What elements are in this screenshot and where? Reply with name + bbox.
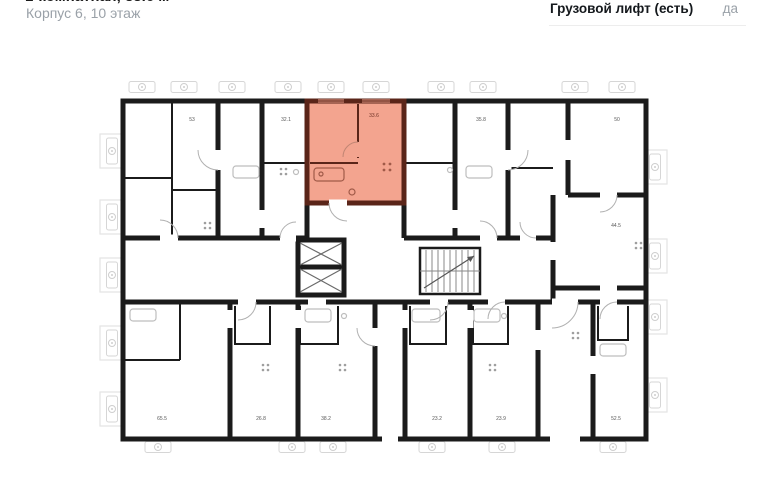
- window-icon: [129, 82, 155, 93]
- window-icon: [609, 82, 635, 93]
- window-icon: [219, 82, 245, 93]
- window-icon: [470, 82, 496, 93]
- unit-area-label: 38.2: [321, 416, 331, 422]
- window-icon: [650, 304, 661, 330]
- window-icon: [363, 82, 389, 93]
- window-icon: [107, 330, 118, 356]
- staircase-icon: [420, 248, 480, 294]
- highlighted-apartment[interactable]: 33.6: [307, 101, 404, 221]
- floor-plan[interactable]: 33.6 53 32.1 35.8 50 44.5 65.5 26.8 38.2…: [0, 0, 770, 500]
- window-icon: [650, 382, 661, 408]
- unit-area-label: 50: [614, 117, 620, 123]
- unit-area-label: 44.5: [611, 223, 621, 229]
- unit-area-label: 35.8: [476, 117, 486, 123]
- window-icon: [489, 442, 515, 453]
- window-icon: [145, 442, 171, 453]
- unit-area-label: 52.5: [611, 416, 621, 422]
- unit-area-label: 23.9: [496, 416, 506, 422]
- unit-area-label: 32.1: [281, 117, 291, 123]
- window-icon: [650, 243, 661, 269]
- unit-area-label: 53: [189, 117, 195, 123]
- window-icon: [107, 138, 118, 164]
- window-icon: [419, 442, 445, 453]
- window-icon: [107, 396, 118, 422]
- unit-area-label: 65.5: [157, 416, 167, 422]
- window-icon: [107, 262, 118, 288]
- window-icon: [650, 154, 661, 180]
- window-icon: [320, 442, 346, 453]
- unit-area-label: 23.2: [432, 416, 442, 422]
- window-icon: [428, 82, 454, 93]
- window-icon: [562, 82, 588, 93]
- window-icon: [279, 442, 305, 453]
- unit-area-label: 26.8: [256, 416, 266, 422]
- window-icon: [107, 204, 118, 230]
- window-icon: [275, 82, 301, 93]
- window-icon: [318, 82, 344, 93]
- selected-unit-area-label: 33.6: [369, 113, 379, 119]
- window-icon: [171, 82, 197, 93]
- window-icon: [600, 442, 626, 453]
